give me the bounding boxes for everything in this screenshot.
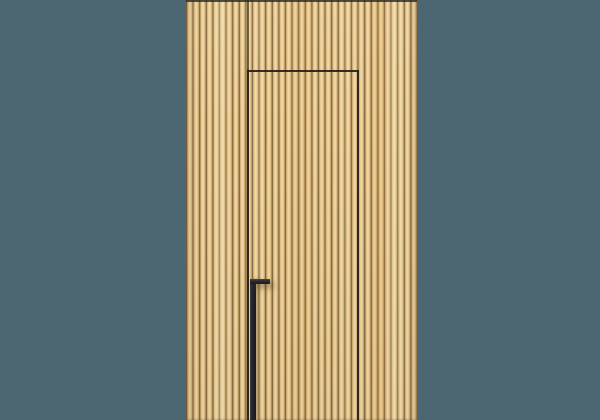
backdrop xyxy=(0,0,600,420)
door-gap-right-seam xyxy=(357,70,359,420)
door-gap-top-seam xyxy=(247,70,359,72)
door-handle-vertical-bar xyxy=(250,279,256,420)
door-gap-left-seam xyxy=(247,0,249,420)
door-handle-top-bar xyxy=(250,279,270,285)
concealed-door xyxy=(247,70,359,420)
panel-top-edge-shadow xyxy=(186,0,417,2)
wood-slat-wall xyxy=(186,0,417,420)
